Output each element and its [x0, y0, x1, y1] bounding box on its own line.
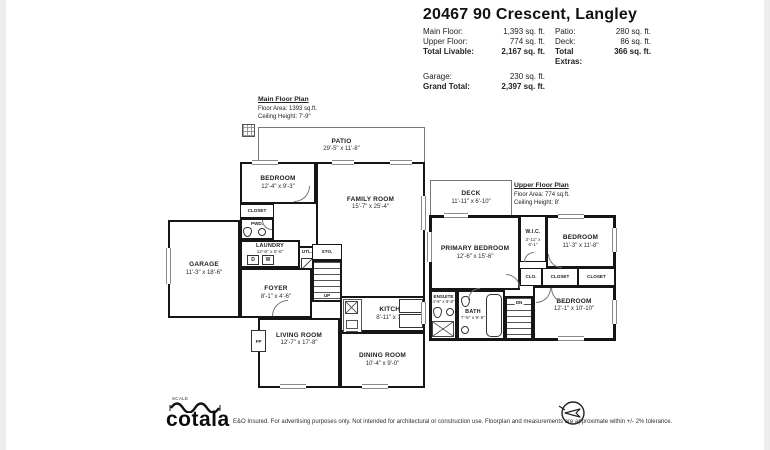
stat-value: 2,397 sq. ft.	[485, 82, 545, 92]
dryer-box: D	[247, 255, 259, 265]
stat-value: 2,167 sq. ft.	[485, 47, 545, 67]
room-dims: 7'-5" x 9'-5"	[461, 316, 485, 321]
patio-feature-icon	[242, 124, 255, 137]
window-marker	[612, 300, 617, 324]
main-floor-ceiling: Ceiling Height: 7'-9"	[258, 113, 317, 121]
window-marker	[166, 248, 171, 284]
room-name: DECK	[461, 190, 480, 197]
room-dims: 12'-6" x 15'-6"	[457, 254, 494, 261]
room-dims: 3'-11" x 6'-1"	[521, 237, 545, 247]
page-title: 20467 90 Crescent, Langley	[400, 6, 660, 24]
room-dining: DINING ROOM 10'-4" x 9'-0"	[340, 332, 425, 388]
stats-row-totals: Total Livable: 2,167 sq. ft. Total Extra…	[423, 47, 651, 67]
stairs-down-label: DN	[515, 300, 524, 305]
area-summary-table: Main Floor: 1,393 sq. ft. Patio: 280 sq.…	[423, 27, 651, 92]
stove-icon	[345, 301, 358, 314]
room-closet-2: CLOSET	[578, 268, 615, 286]
stat-value: 230 sq. ft.	[485, 72, 545, 82]
main-floor-plan-head: Main Floor Plan Floor Area: 1393 sq.ft. …	[258, 95, 317, 121]
room-name: FAMILY ROOM	[347, 196, 394, 203]
room-label: CLO.	[521, 269, 541, 285]
window-marker	[444, 213, 468, 218]
left-edge-strip	[0, 0, 6, 450]
room-dims: 11'-11" x 6'-10"	[451, 199, 490, 206]
room-dims: 4'-8" x 9'-8"	[432, 300, 454, 305]
room-name: BEDROOM	[260, 175, 295, 182]
appliance-box	[399, 299, 423, 313]
room-label: CLOSET	[579, 269, 614, 285]
window-marker	[280, 384, 306, 389]
stat-label: Garage:	[423, 72, 485, 82]
right-edge-strip	[764, 0, 770, 450]
stat-value: 1,393 sq. ft.	[485, 27, 545, 37]
room-closet-1: CLOSET	[542, 268, 578, 286]
floor-plan-page: 20467 90 Crescent, Langley Main Floor: 1…	[0, 0, 770, 450]
room-name: FOYER	[264, 285, 287, 292]
room-label: CLOSET	[543, 269, 577, 285]
main-floor-plan-title: Main Floor Plan	[258, 95, 317, 105]
room-clo: CLO.	[520, 268, 542, 286]
stats-row: Upper Floor: 774 sq. ft. Deck: 86 sq. ft…	[423, 37, 651, 47]
room-dims: 15'-7" x 25'-4"	[352, 204, 389, 211]
room-label: DECK 11'-11" x 6'-10"	[431, 181, 511, 215]
stat-value: 774 sq. ft.	[485, 37, 545, 47]
room-name: UTL.	[302, 249, 312, 254]
room-name: LIVING ROOM	[276, 332, 322, 339]
room-name: DINING ROOM	[359, 352, 406, 359]
stat-label: Deck:	[545, 37, 597, 47]
room-name: W.I.C.	[525, 230, 540, 236]
room-garage: GARAGE 11'-3" x 18'-6"	[168, 220, 240, 318]
room-label: LIVING ROOM 12'-7" x 17'-8"	[260, 320, 338, 386]
disclaimer-text: E&O Insured. For advertising purposes on…	[233, 419, 672, 425]
room-name: PRIMARY BEDROOM	[441, 245, 509, 252]
room-name: CLO.	[526, 274, 537, 279]
room-deck: DECK 11'-11" x 6'-10"	[430, 180, 512, 216]
refrigerator-box	[399, 314, 423, 328]
sink-fixture	[446, 308, 454, 316]
fireplace-box: FP	[251, 330, 266, 352]
kitchen-sink-fixture	[346, 320, 358, 329]
upper-floor-plan-title: Upper Floor Plan	[514, 181, 570, 191]
upper-floor-plan-head: Upper Floor Plan Floor Area: 774 sq.ft. …	[514, 181, 570, 207]
room-living: LIVING ROOM 12'-7" x 17'-8"	[258, 318, 340, 388]
room-label: DINING ROOM 10'-4" x 9'-0"	[342, 334, 423, 386]
stat-value: 366 sq. ft.	[597, 47, 651, 67]
room-dims: 11'-3" x 11'-8"	[562, 243, 598, 250]
window-marker	[362, 384, 388, 389]
room-name: BATH	[465, 309, 481, 315]
stat-label: Patio:	[545, 27, 597, 37]
window-marker	[332, 160, 354, 165]
window-marker	[427, 232, 432, 262]
room-dims: 12'-7" x 17'-8"	[281, 340, 318, 347]
room-label: CLOSET	[241, 205, 273, 217]
room-name: PATIO	[332, 138, 352, 145]
room-name: BEDROOM	[563, 234, 598, 241]
upper-floor-ceiling: Ceiling Height: 8'	[514, 199, 570, 207]
room-dims: 12'-4" x 9'-3"	[261, 184, 295, 191]
room-name: GARAGE	[189, 261, 219, 268]
shower-icon	[432, 321, 454, 337]
cotala-logo: cotala	[166, 408, 230, 432]
main-floor-area: Floor Area: 1393 sq.ft.	[258, 105, 317, 113]
room-dims: 10'-4" x 9'-0"	[366, 361, 400, 368]
room-name: CLOSET	[248, 208, 267, 213]
stat-label: Grand Total:	[423, 82, 485, 92]
stat-label: Total Extras:	[545, 47, 597, 67]
stats-row: Main Floor: 1,393 sq. ft. Patio: 280 sq.…	[423, 27, 651, 37]
sink-fixture	[258, 228, 266, 236]
room-dims: 29'-5" x 11'-8"	[323, 146, 359, 153]
bathtub-fixture	[486, 294, 502, 337]
room-closet: CLOSET	[240, 204, 274, 218]
room-name: CLOSET	[551, 274, 570, 279]
stat-label: Main Floor:	[423, 27, 485, 37]
compass-icon	[555, 396, 589, 430]
window-marker	[558, 214, 584, 219]
room-label: GARAGE 11'-3" x 18'-6"	[170, 222, 238, 316]
stairs-up: UP	[312, 260, 342, 302]
room-dims: 11'-3" x 18'-6"	[186, 270, 222, 277]
stat-value: 86 sq. ft.	[597, 37, 651, 47]
stats-row-grand-total: Grand Total: 2,397 sq. ft.	[423, 82, 651, 92]
room-storage: STO.	[312, 244, 342, 260]
stat-label: Total Livable:	[423, 47, 485, 67]
window-marker	[390, 160, 412, 165]
upper-floor-area: Floor Area: 774 sq.ft.	[514, 191, 570, 199]
room-name: LAUNDRY	[256, 243, 284, 249]
stairs-down: DN	[505, 296, 533, 340]
window-marker	[421, 302, 426, 324]
window-marker	[612, 228, 617, 252]
sink-fixture	[461, 326, 469, 334]
room-label: STO.	[313, 245, 341, 259]
window-marker	[252, 160, 278, 165]
room-name: STO.	[322, 249, 333, 254]
stat-label: Upper Floor:	[423, 37, 485, 47]
room-label: PATIO 29'-5" x 11'-8"	[259, 128, 424, 163]
window-marker	[421, 196, 426, 230]
stats-row-garage: Garage: 230 sq. ft.	[423, 72, 651, 82]
room-name: CLOSET	[587, 274, 606, 279]
room-dims: 12'-1" x 10'-10"	[554, 306, 594, 313]
window-marker	[558, 336, 584, 341]
washer-box: W	[262, 255, 274, 265]
room-patio: PATIO 29'-5" x 11'-8"	[258, 127, 425, 164]
stairs-up-label: UP	[323, 293, 331, 298]
stat-value: 280 sq. ft.	[597, 27, 651, 37]
